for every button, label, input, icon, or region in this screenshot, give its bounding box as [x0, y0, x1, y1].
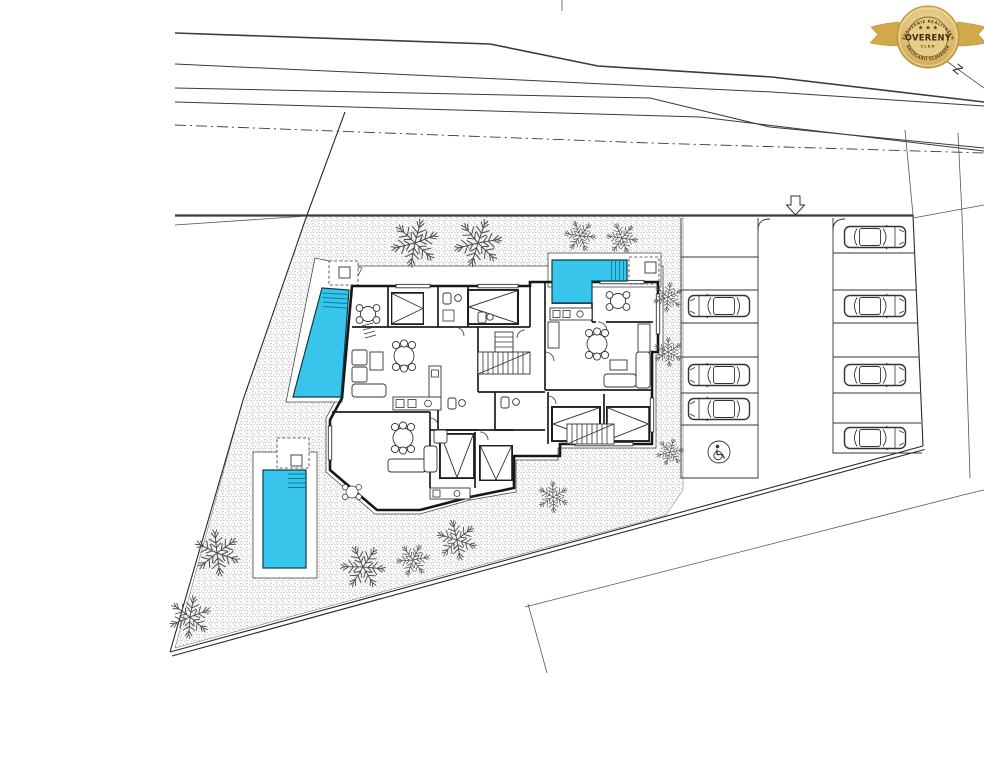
badge-ribbon-right: [957, 22, 984, 46]
bed-icon: [392, 293, 424, 324]
stairs-icon: [567, 424, 614, 444]
badge-ribbon-left: [870, 22, 899, 46]
car-icon: [845, 225, 906, 249]
badge-stars: ★ ★ ★: [918, 25, 938, 32]
orientation-letter: Z: [950, 61, 965, 77]
entrance-arrow-icon: [787, 196, 805, 215]
kitchen-counter-icon: [430, 488, 470, 499]
parking-left-column: [681, 218, 770, 478]
car-icon: [845, 294, 906, 318]
kitchen-counter-icon: [393, 397, 441, 410]
site-plan-page: Z: [0, 0, 984, 768]
road-lines: [175, 0, 984, 153]
car-icon: [689, 294, 750, 318]
pool-south: [263, 470, 306, 568]
car-icon: [845, 426, 906, 450]
verified-badge: ZDRUŽENIE REALITNÝCH KANCELÁRIÍ SLOVENSK…: [870, 6, 984, 68]
badge-title: OVERENÝ: [905, 32, 952, 43]
site-plan-drawing: Z: [0, 0, 984, 768]
accessible-parking-icon: [708, 441, 730, 463]
car-icon: [845, 363, 906, 387]
parking-right-column: [833, 218, 922, 453]
road-centerline: [175, 125, 984, 153]
parking-area: [681, 196, 922, 478]
badge-subtitle: ČLEN: [920, 44, 935, 49]
car-icon: [689, 363, 750, 387]
stairs-icon: [495, 332, 513, 352]
car-icon: [689, 397, 750, 421]
wardrobe-icon: [638, 324, 650, 352]
stairs-icon: [478, 352, 530, 374]
kitchen-counter-icon: [429, 366, 441, 397]
bed-icon: [480, 446, 512, 481]
